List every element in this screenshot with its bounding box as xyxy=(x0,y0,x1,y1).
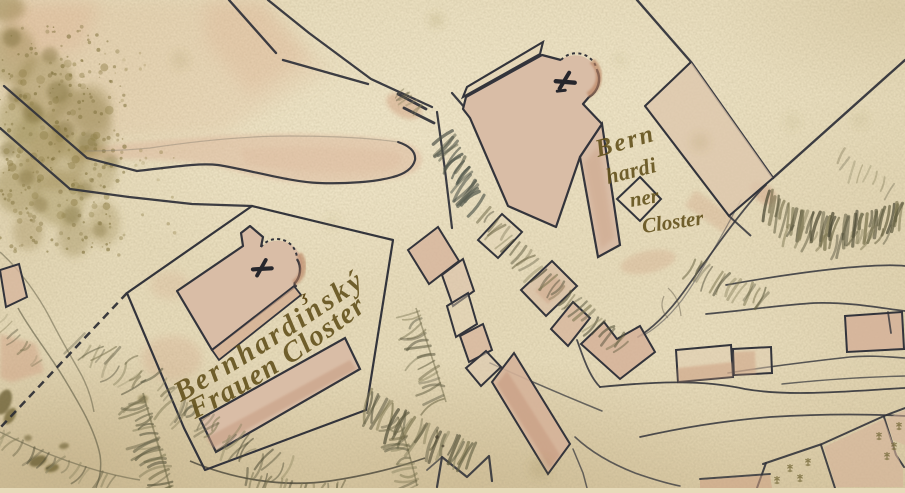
svg-text:ner: ner xyxy=(628,183,662,212)
